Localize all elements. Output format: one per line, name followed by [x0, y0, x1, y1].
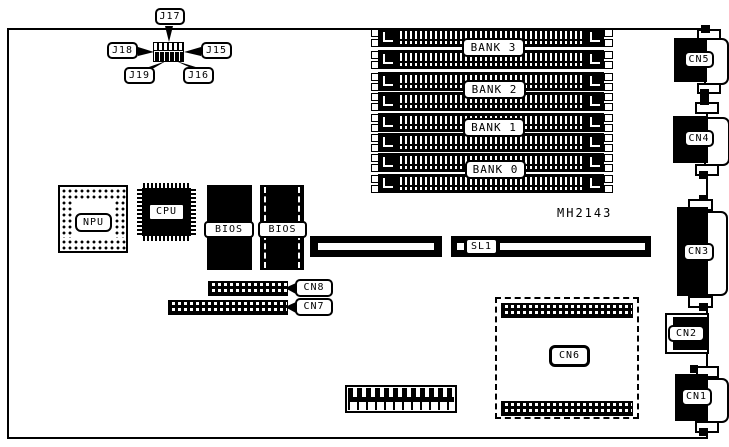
jumper-block-bottom-rows — [154, 52, 183, 61]
cn1-mounting-nub-top — [690, 365, 698, 373]
cn5-label: CN5 — [684, 51, 714, 68]
jumper-label-j17: J17 — [155, 8, 185, 25]
simm-clip-icon — [378, 113, 397, 132]
cn3-mounting-nub-bottom — [699, 303, 708, 311]
npu-pin-grid-right — [113, 199, 126, 238]
npu-label: NPU — [75, 213, 112, 232]
bank-label-bank0: BANK 0 — [465, 160, 526, 179]
slot-stripe — [500, 243, 645, 250]
bios-label-right: BIOS — [258, 221, 307, 238]
simm-clip-icon — [585, 133, 604, 152]
jumper-block-top-row — [154, 43, 183, 51]
cn7-label: CN7 — [295, 298, 333, 316]
simm-clip-icon — [585, 72, 604, 91]
cn4-mounting-nub-bottom — [699, 171, 708, 179]
simm-clip-icon — [585, 113, 604, 132]
cn1-mounting-nub-bottom — [699, 428, 708, 436]
power-connector — [345, 385, 457, 413]
simm-clip-icon — [378, 28, 397, 47]
cn5-mounting-nub-top — [701, 25, 710, 33]
cn6-label: CN6 — [549, 345, 590, 367]
cn3-label: CN3 — [683, 243, 714, 261]
bank-label-bank1: BANK 1 — [463, 118, 525, 137]
jumper-label-j16: J16 — [183, 67, 214, 84]
simm-clip-icon — [585, 153, 604, 172]
simm-clip-icon — [585, 50, 604, 69]
cpu-chip: CPU — [137, 183, 196, 241]
power-connector-sockets — [348, 401, 454, 410]
cn6-pin-header-top — [501, 303, 633, 318]
cpu-label: CPU — [148, 203, 185, 221]
slot-key-square — [457, 243, 464, 250]
cn6-pin-header-bottom — [501, 401, 633, 416]
simm-clip-icon — [378, 50, 397, 69]
cn8-label: CN8 — [295, 279, 333, 297]
bank-label-bank3: BANK 3 — [462, 38, 525, 57]
npu-pin-grid-left — [60, 199, 73, 238]
power-connector-pins-top — [348, 388, 454, 397]
simm-clip-icon — [378, 72, 397, 91]
simm-clip-icon — [378, 133, 397, 152]
cn3-mounting-nub-top — [699, 195, 708, 201]
simm-clip-icon — [378, 153, 397, 172]
simm-left-tabs — [371, 28, 378, 47]
sl1-label: SL1 — [465, 238, 498, 255]
cn4-mounting-nub-top — [700, 97, 709, 105]
jumper-label-j19: J19 — [124, 67, 155, 84]
jumper-block — [153, 42, 184, 62]
slot-stripe — [318, 243, 434, 250]
simm-clip-icon — [378, 92, 397, 111]
simm-right-tabs — [604, 28, 611, 47]
cn1-label: CN1 — [681, 388, 712, 406]
npu-chip: NPU — [58, 185, 128, 253]
board-id-label: MH2143 — [557, 206, 612, 220]
simm-clip-icon — [585, 174, 604, 193]
pin-header-cn7 — [168, 300, 288, 315]
cn4-label: CN4 — [684, 130, 714, 147]
cn2-label: CN2 — [668, 325, 705, 342]
bank-label-bank2: BANK 2 — [463, 80, 526, 99]
bios-label-left: BIOS — [204, 221, 254, 238]
npu-pin-grid-bottom — [60, 238, 126, 251]
npu-pin-grid-top — [60, 187, 126, 199]
motherboard-diagram: J17 J18 J15 J19 J16 NPU CPU BIOS BIOS — [0, 0, 729, 447]
simm-clip-icon — [585, 28, 604, 47]
jumper-label-j18: J18 — [107, 42, 138, 59]
simm-clip-icon — [585, 92, 604, 111]
simm-clip-icon — [378, 174, 397, 193]
pin-header-cn8 — [208, 281, 288, 296]
jumper-label-j15: J15 — [201, 42, 232, 59]
expansion-slot-left — [310, 236, 442, 257]
